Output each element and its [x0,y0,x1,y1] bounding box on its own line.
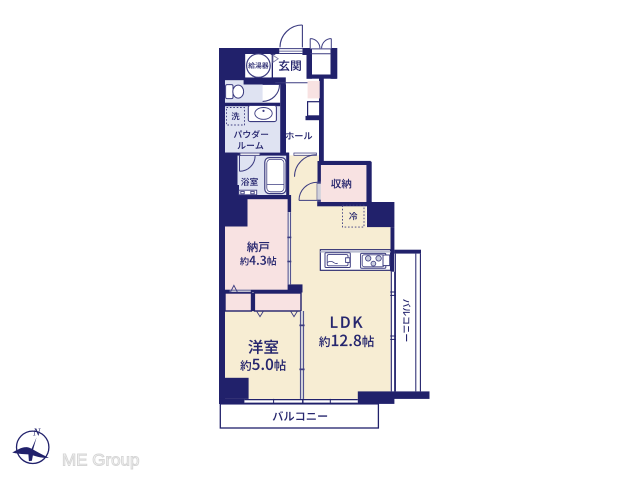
svg-text:N: N [32,427,41,439]
svg-text:ME Group: ME Group [62,451,139,470]
